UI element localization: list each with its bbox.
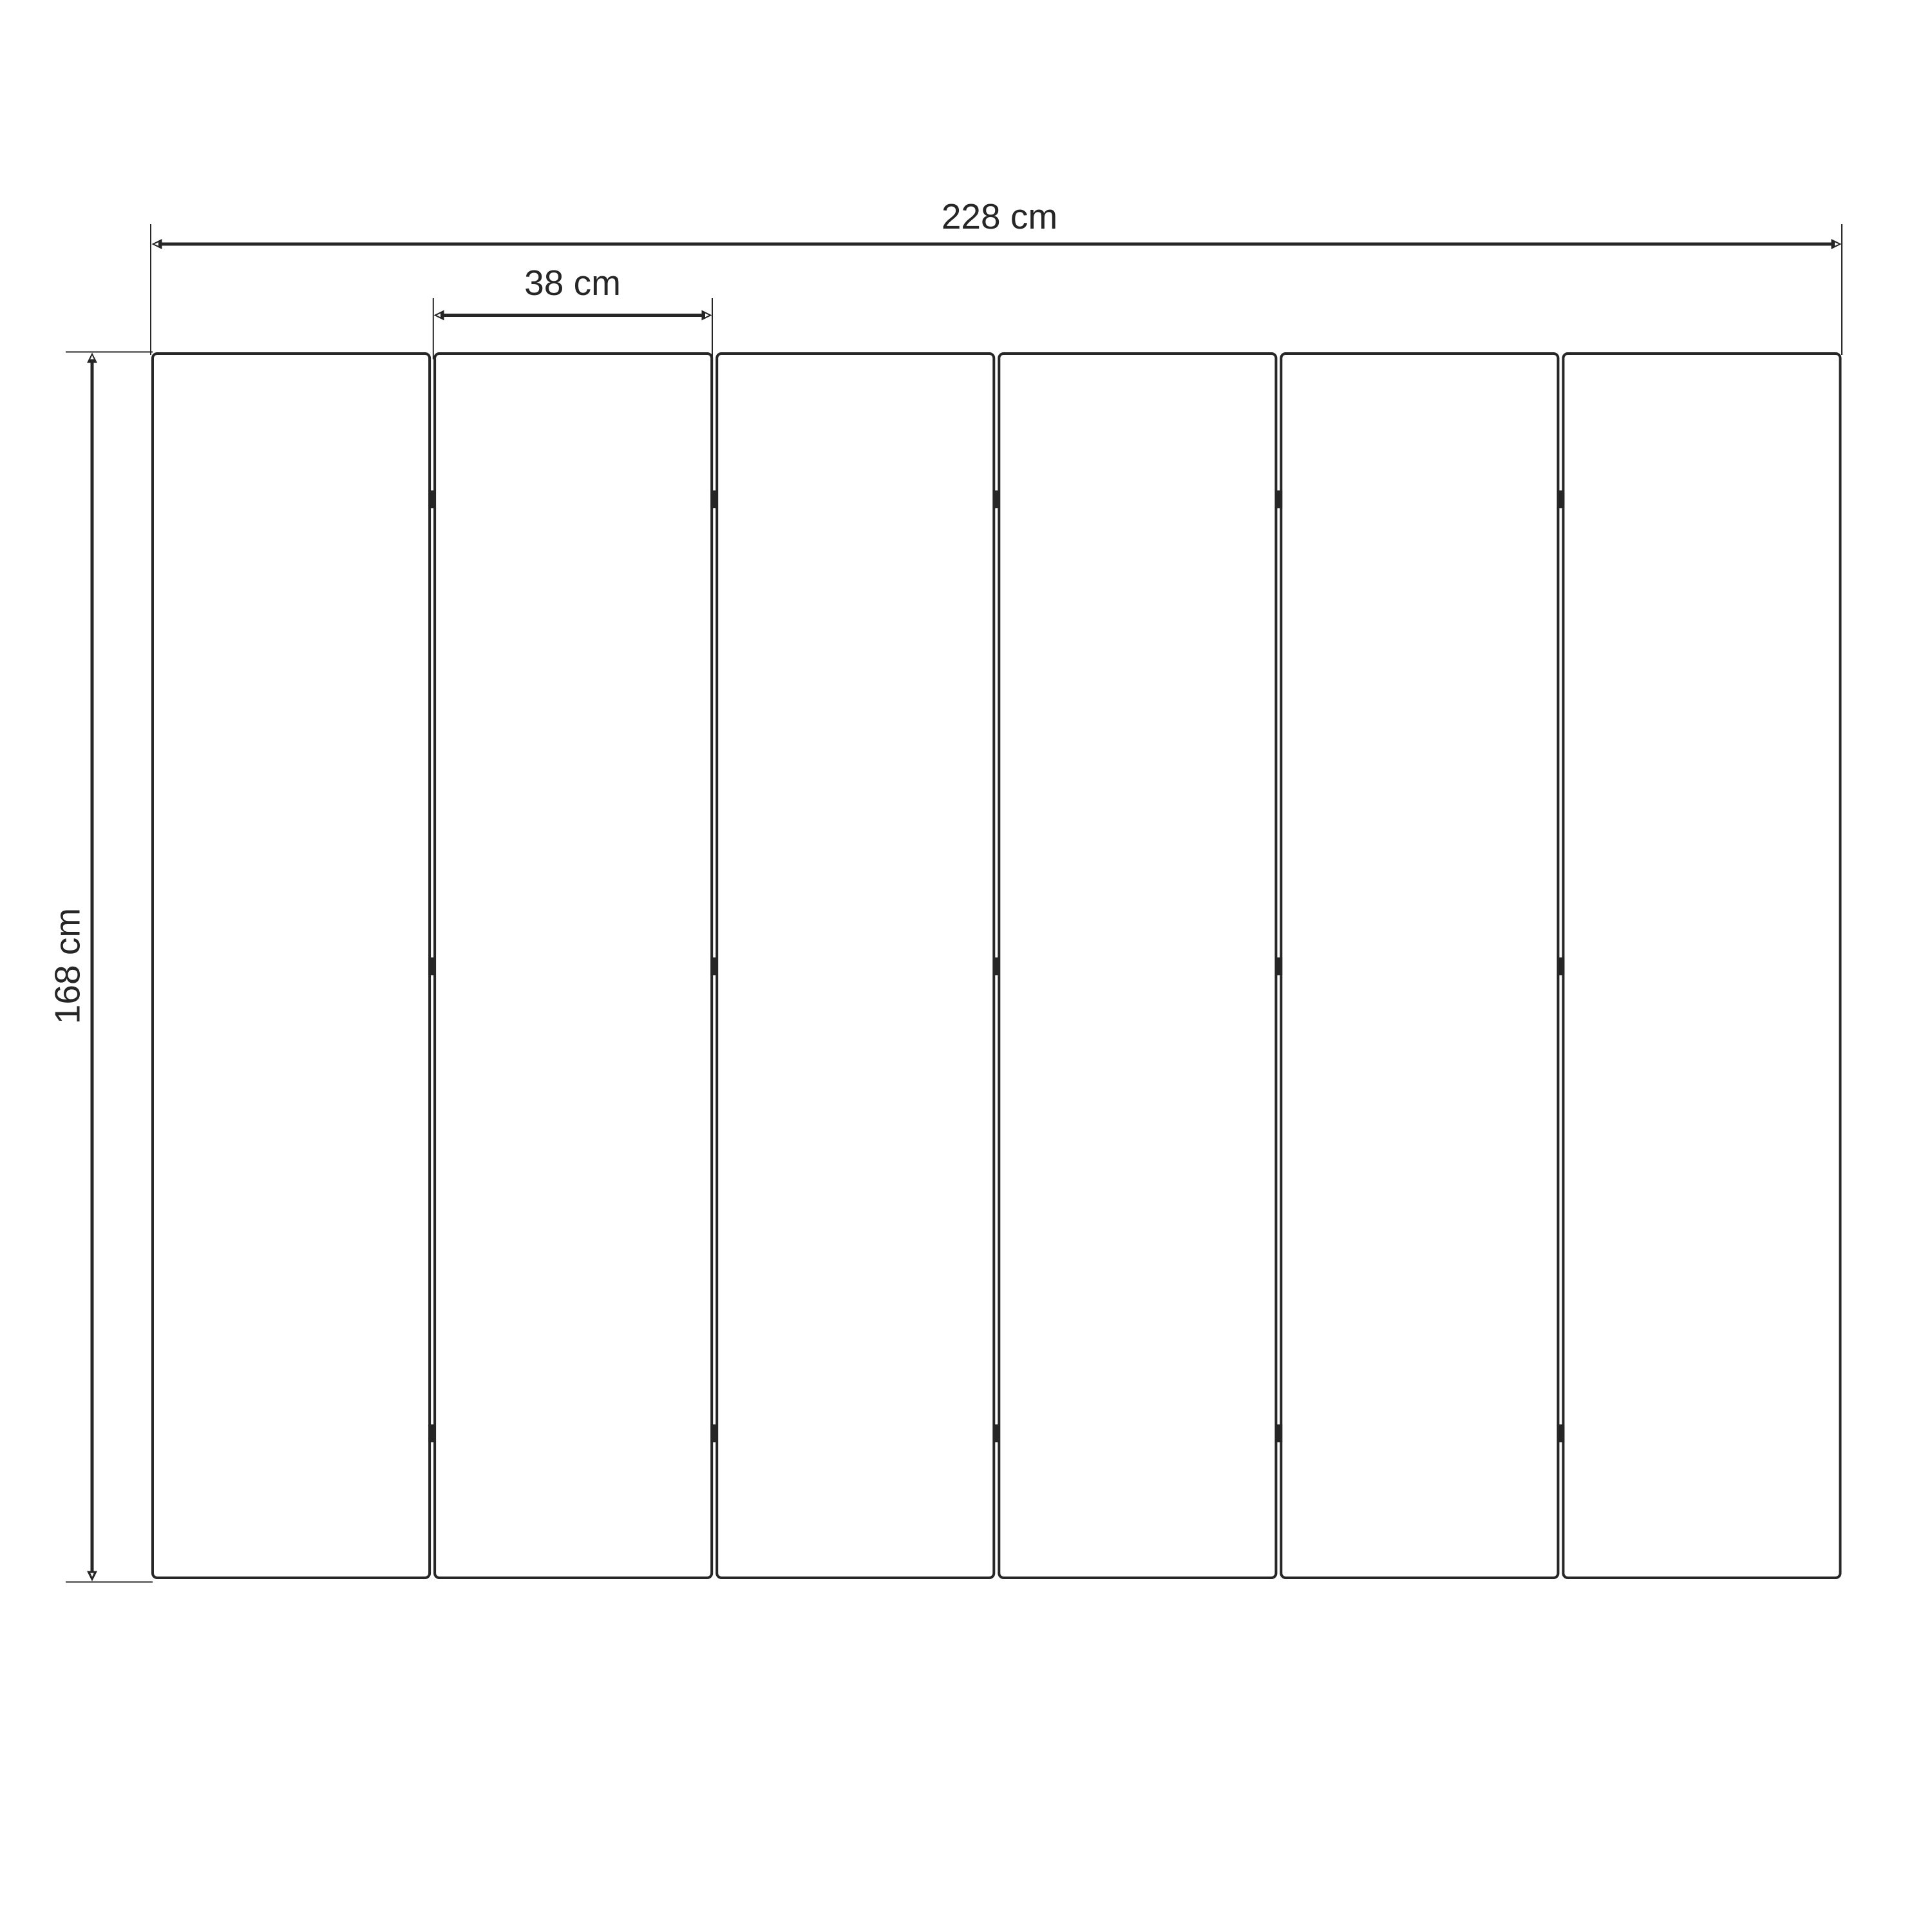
svg-text:168 cm: 168 cm (48, 908, 88, 1024)
svg-text:228 cm: 228 cm (942, 196, 1057, 236)
svg-text:38 cm: 38 cm (524, 263, 621, 303)
